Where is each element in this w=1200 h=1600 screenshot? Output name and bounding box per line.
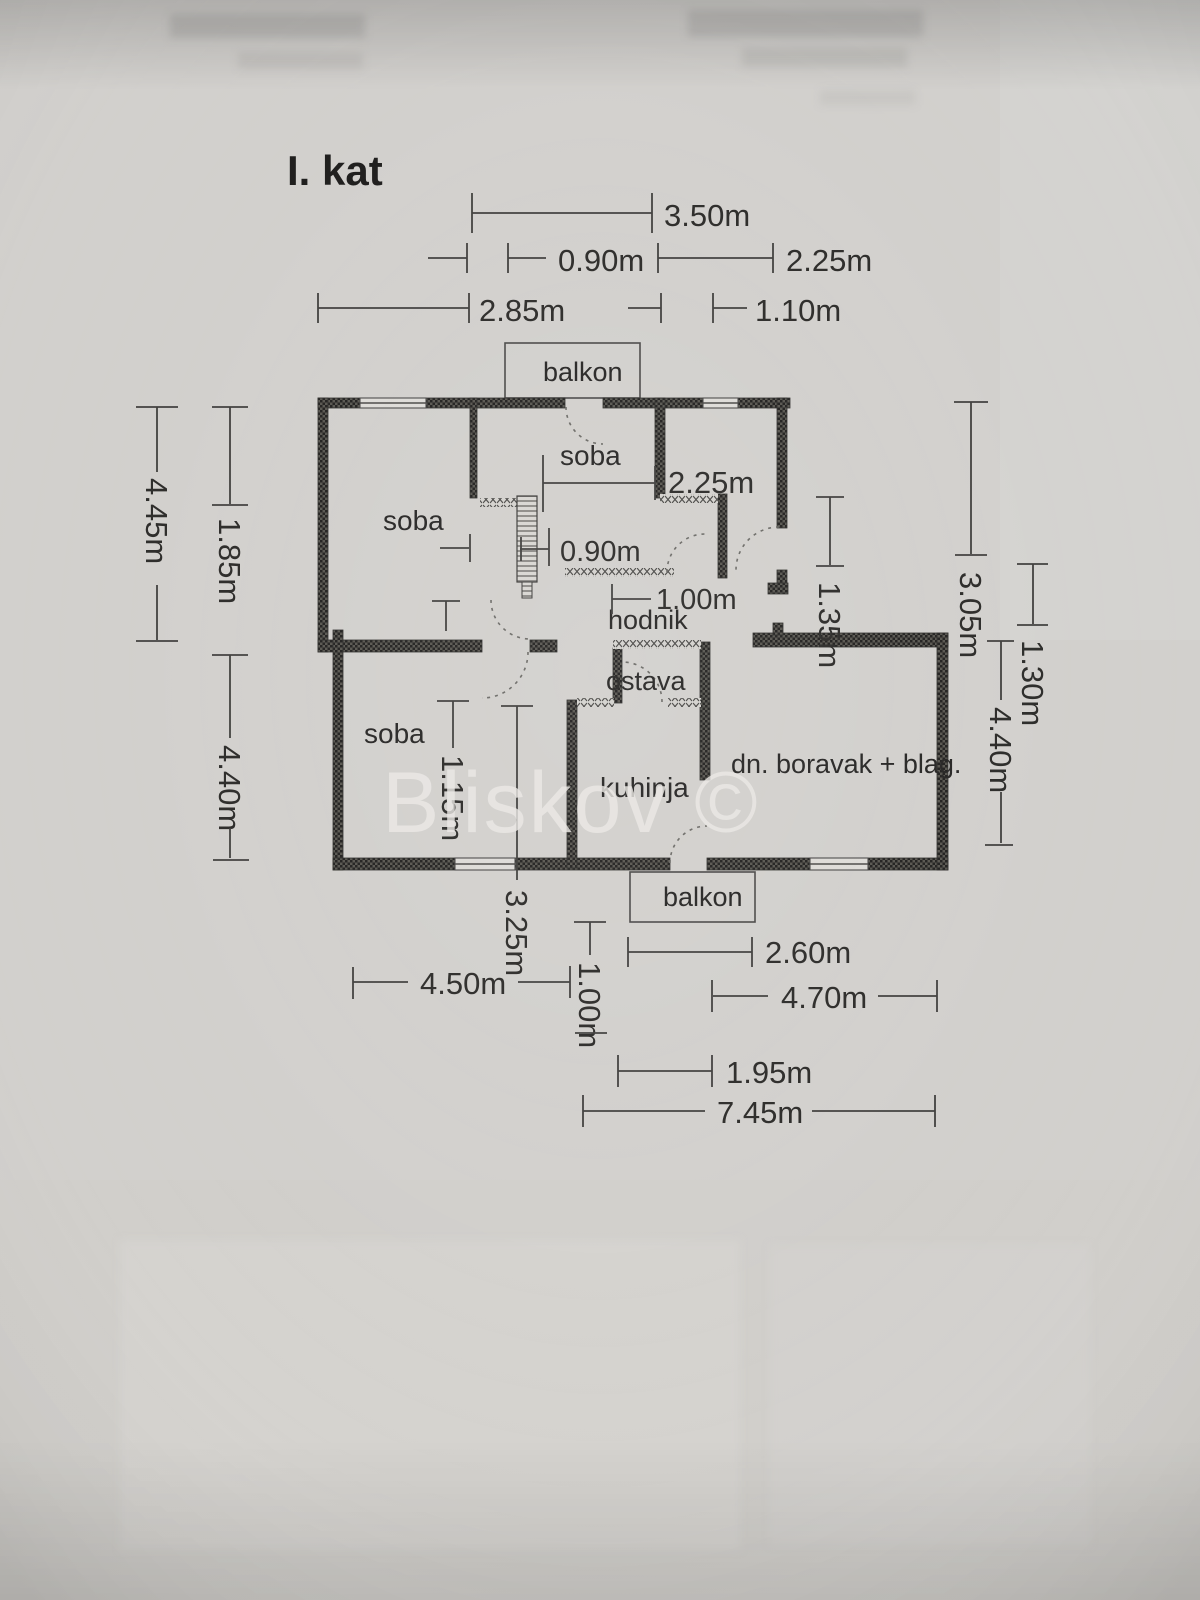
photo-vignette [0,0,1200,1600]
floorplan-svg: I. kat balkon [0,0,1200,1600]
floorplan-photo: I. kat balkon [0,0,1200,1600]
